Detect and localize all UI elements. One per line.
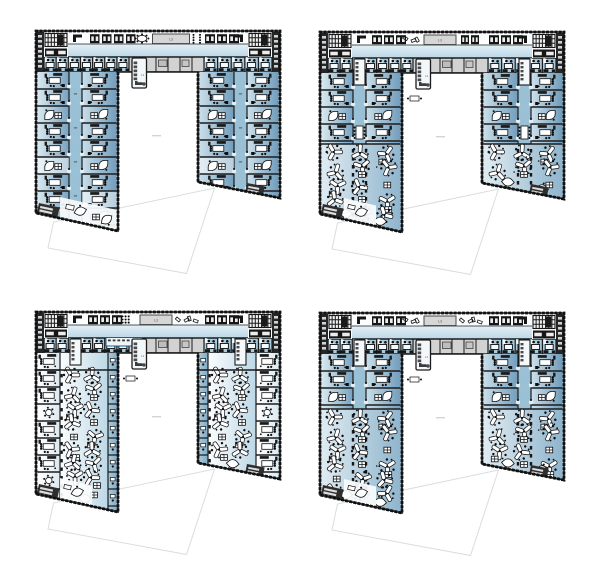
svg-text:L3: L3 bbox=[141, 73, 145, 77]
svg-text:L3: L3 bbox=[141, 354, 145, 358]
svg-text:L3: L3 bbox=[425, 74, 429, 78]
svg-text:L3: L3 bbox=[438, 320, 442, 324]
svg-text:L3: L3 bbox=[438, 39, 442, 43]
svg-text:L3: L3 bbox=[169, 38, 173, 42]
svg-text:L3: L3 bbox=[154, 319, 158, 323]
svg-text:L3: L3 bbox=[425, 355, 429, 359]
